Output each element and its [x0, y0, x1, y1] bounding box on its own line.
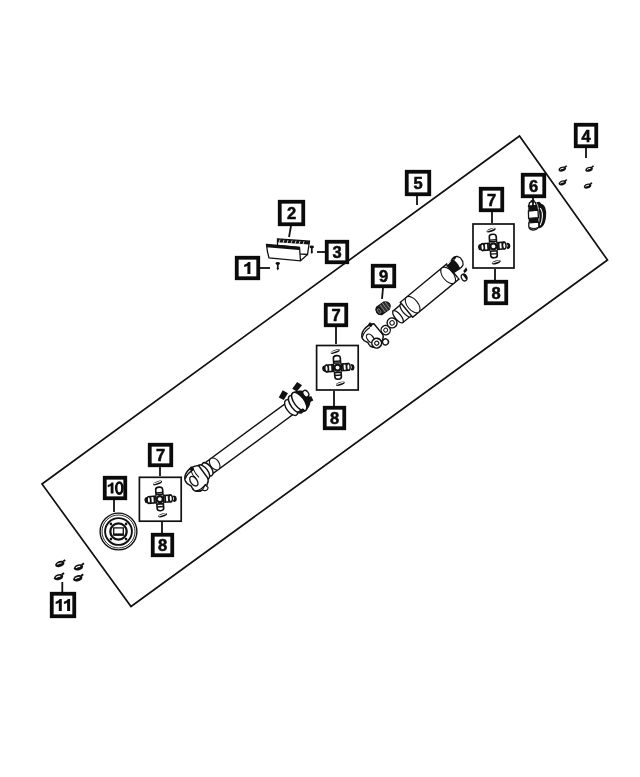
svg-text:3: 3	[332, 243, 341, 261]
svg-text:7: 7	[487, 191, 496, 209]
svg-text:5: 5	[413, 174, 422, 192]
svg-text:6: 6	[529, 177, 538, 195]
svg-text:8: 8	[158, 536, 167, 554]
svg-text:4: 4	[581, 127, 591, 145]
svg-text:8: 8	[491, 284, 500, 302]
svg-text:7: 7	[156, 446, 165, 464]
svg-text:9: 9	[379, 267, 388, 285]
svg-text:8: 8	[330, 409, 339, 427]
svg-text:7: 7	[331, 306, 340, 324]
svg-text:2: 2	[287, 204, 296, 222]
